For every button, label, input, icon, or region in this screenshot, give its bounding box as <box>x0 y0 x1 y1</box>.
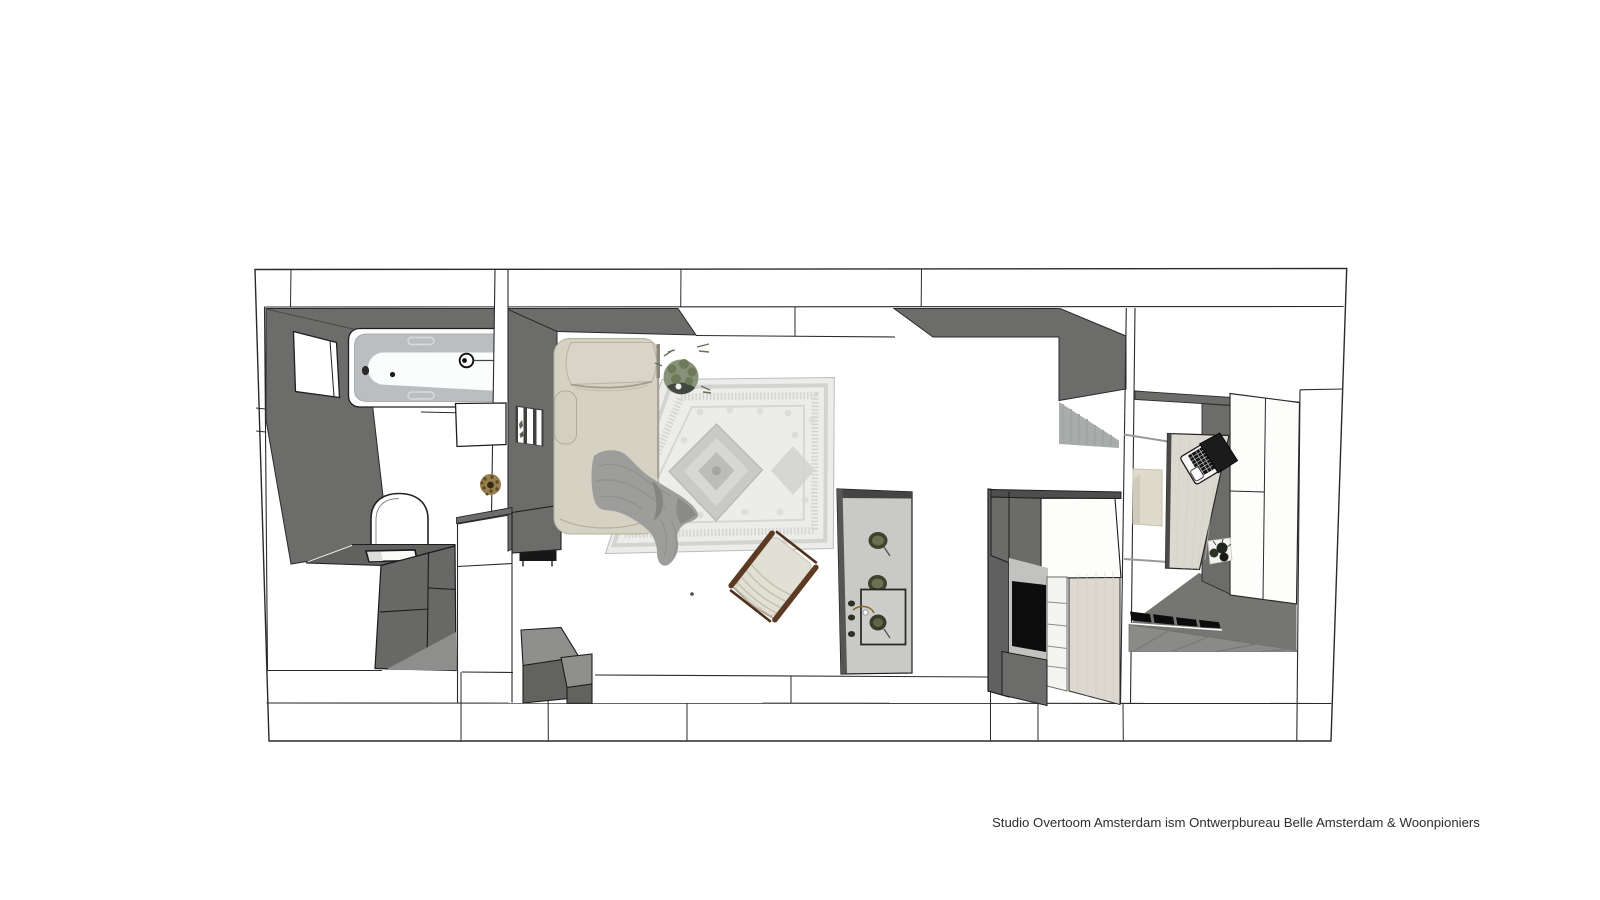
svg-text:Studio Overtoom Amsterdam ism: Studio Overtoom Amsterdam ism Ontwerpbur… <box>992 815 1480 830</box>
